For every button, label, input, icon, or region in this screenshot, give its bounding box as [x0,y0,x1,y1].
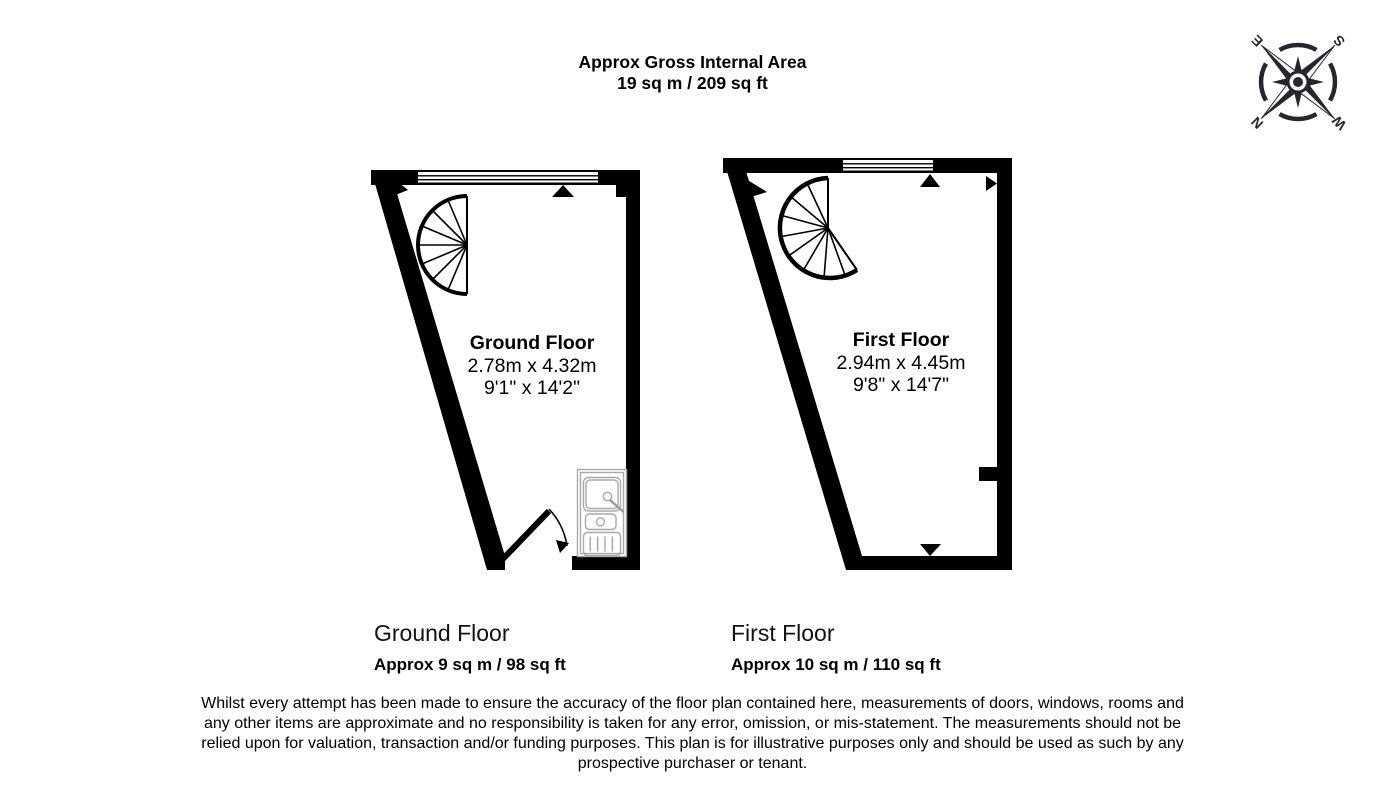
first-window-icon [843,160,933,171]
sink-outer-frame [578,470,627,557]
first-caption-area: Approx 10 sq m / 110 sq ft [731,655,941,675]
ground-room-name: Ground Floor [432,332,632,355]
first-wall-notch [741,176,767,200]
ground-window-icon [418,172,598,183]
sink-drainer-ridges [590,537,612,552]
title-line-1: Approx Gross Internal Area [0,52,1385,73]
first-spiral-staircase [779,178,857,278]
disclaimer-line-2: any other items are approximate and no r… [0,714,1385,734]
sink-small-drain [597,518,605,526]
ground-room-metric: 2.78m x 4.32m [432,355,632,378]
floorplan-canvas: N E S W Approx Gross Internal Area 19 sq… [0,0,1385,800]
title-line-2: 19 sq m / 209 sq ft [0,73,1385,94]
ground-window-line-2 [418,179,598,180]
first-marker-triangle-up [920,174,940,187]
ground-spiral-staircase [418,196,467,294]
ground-floor-caption: Ground Floor Approx 9 sq m / 98 sq ft [374,620,566,675]
disclaimer-text: Whilst every attempt has been made to en… [0,694,1385,774]
floorplan-graphics: N E S W [0,0,1385,800]
ground-window-glass [418,172,598,183]
first-floor-room-label: First Floor 2.94m x 4.45m 9'8" x 14'7" [801,329,1001,397]
ground-window-line-1 [418,175,598,176]
ground-door-leaf [500,511,549,562]
first-floor-caption: First Floor Approx 10 sq m / 110 sq ft [731,620,941,675]
sink-drainer [584,533,621,556]
disclaimer-line-3: relied upon for valuation, transaction a… [0,734,1385,754]
ground-room-imperial: 9'1" x 14'2" [432,377,632,400]
sink-drain [603,492,611,500]
ground-marker-triangle-up [552,185,574,197]
first-bottom-wall [846,556,1012,570]
first-marker-triangle-down [920,544,941,556]
first-window-line-1 [843,163,933,164]
sink-small-basin [586,514,617,530]
first-window-glass [843,160,933,171]
first-window-line-2 [843,167,933,168]
first-room-imperial: 9'8" x 14'7" [801,374,1001,397]
disclaimer-line-1: Whilst every attempt has been made to en… [0,694,1385,714]
ground-corner-step [616,185,640,197]
ground-door [500,509,569,562]
ground-caption-name: Ground Floor [374,620,566,647]
first-stair-arc [780,178,857,278]
first-room-metric: 2.94m x 4.45m [801,352,1001,375]
page-title: Approx Gross Internal Area 19 sq m / 209… [0,52,1385,94]
first-wall-stub [979,467,998,481]
first-room-name: First Floor [801,329,1001,352]
disclaimer-line-4: prospective purchaser or tenant. [0,754,1385,774]
ground-bottom-wall [572,556,640,570]
first-marker-triangle-right [986,176,997,191]
kitchen-sink-icon [578,470,627,557]
ground-caption-area: Approx 9 sq m / 98 sq ft [374,655,566,675]
first-caption-name: First Floor [731,620,941,647]
ground-floor-room-label: Ground Floor 2.78m x 4.32m 9'1" x 14'2" [432,332,632,400]
sink-inner-frame [581,473,624,554]
ground-door-swing-arc [549,509,567,546]
compass-south-label: S [1330,32,1348,50]
